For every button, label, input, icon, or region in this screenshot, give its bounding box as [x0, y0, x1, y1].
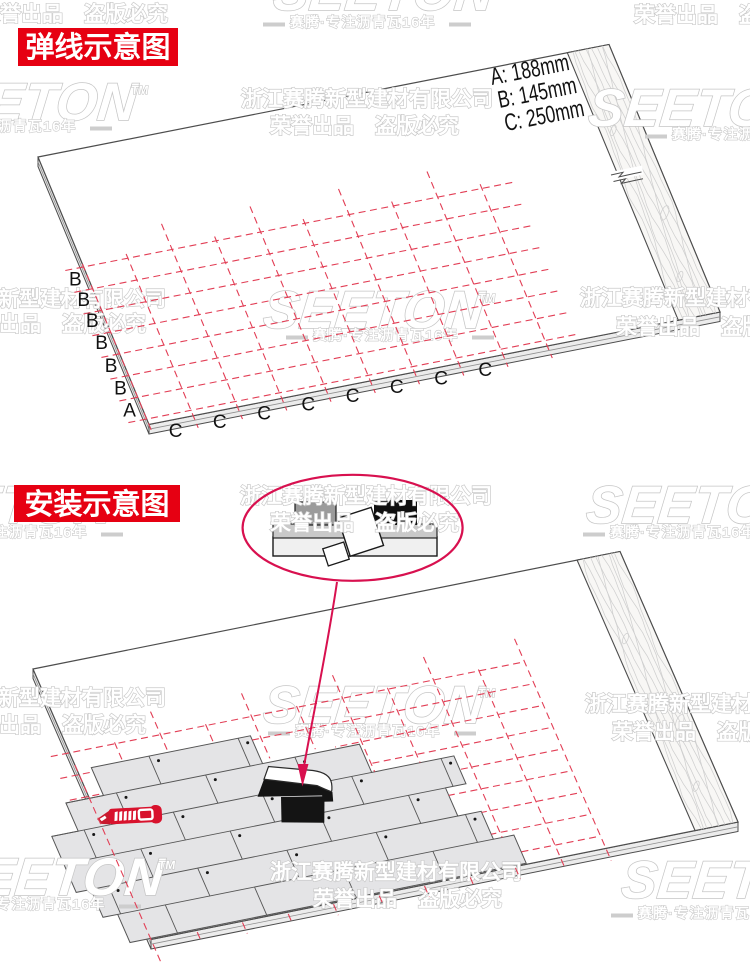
svg-text:C: C [390, 377, 404, 398]
svg-text:赛腾·专注沥青瓦16年: 赛腾·专注沥青瓦16年 [294, 723, 440, 739]
svg-text:浙江赛腾新型建材有限公司: 浙江赛腾新型建材有限公司 [585, 692, 750, 716]
svg-text:荣誉出品 盗版必究: 荣誉出品 盗版必究 [0, 312, 146, 336]
svg-text:荣誉出品 盗版必究: 荣誉出品 盗版必究 [0, 713, 146, 737]
svg-text:B: B [86, 311, 99, 332]
svg-text:B: B [69, 270, 82, 291]
svg-text:A: A [123, 400, 136, 421]
svg-text:荣誉出品 盗版必究: 荣誉出品 盗版必究 [269, 511, 459, 535]
svg-text:TM: TM [130, 83, 149, 97]
svg-text:SEETON: SEETON [619, 851, 750, 910]
svg-text:浙江赛腾新型建材有限公司: 浙江赛腾新型建材有限公司 [241, 87, 493, 111]
svg-text:C: C [301, 395, 315, 416]
svg-text:TM: TM [477, 686, 496, 700]
svg-text:C: C [169, 421, 183, 442]
svg-text:荣誉出品 盗版必究: 荣誉出品 盗版必究 [611, 720, 750, 744]
svg-text:B: B [95, 333, 108, 354]
svg-text:C: C [257, 403, 271, 424]
svg-text:C: C [346, 386, 360, 407]
svg-text:荣誉出品 盗版必究: 荣誉出品 盗版必究 [269, 114, 459, 138]
svg-text:浙江赛腾新型建材有限公司: 浙江赛腾新型建材有限公司 [240, 484, 492, 508]
svg-text:赛腾·专注沥青瓦16年: 赛腾·专注沥青瓦16年 [312, 327, 458, 343]
svg-text:赛腾·专注沥青瓦16年: 赛腾·专注沥青瓦16年 [0, 896, 105, 912]
svg-text:B: B [105, 356, 118, 377]
svg-text:赛腾·专注沥青瓦16年: 赛腾·专注沥青瓦16年 [609, 524, 750, 540]
svg-text:荣誉出品 盗版必究: 荣誉出品 盗版必究 [312, 887, 502, 911]
svg-text:TM: TM [157, 858, 176, 872]
svg-text:C: C [478, 360, 492, 381]
svg-text:弹线示意图: 弹线示意图 [25, 30, 170, 64]
svg-text:赛腾·专注沥青瓦16年: 赛腾·专注沥青瓦16年 [289, 14, 435, 30]
svg-text:浙江赛腾新型建材有限公司: 浙江赛腾新型建材有限公司 [270, 860, 522, 884]
svg-text:荣誉出品 盗版必究: 荣誉出品 盗版必究 [633, 3, 750, 27]
svg-text:赛腾·专注沥青瓦16年: 赛腾·专注沥青瓦16年 [0, 118, 76, 134]
svg-text:B: B [114, 379, 127, 400]
svg-text:浙江赛腾新型建材有限公司: 浙江赛腾新型建材有限公司 [0, 686, 166, 710]
svg-text:荣誉出品 盗版必究: 荣誉出品 盗版必究 [615, 315, 750, 339]
svg-text:赛腾·专注沥青瓦16年: 赛腾·专注沥青瓦16年 [671, 126, 750, 142]
svg-text:C: C [213, 412, 227, 433]
svg-text:浙江赛腾新型建材有限公司: 浙江赛腾新型建材有限公司 [580, 286, 750, 310]
svg-text:B: B [77, 290, 90, 311]
svg-text:赛腾·专注沥青瓦16年: 赛腾·专注沥青瓦16年 [637, 905, 750, 921]
svg-text:C: C [434, 369, 448, 390]
svg-text:赛腾·专注沥青瓦16年: 赛腾·专注沥青瓦16年 [0, 524, 87, 540]
svg-text:TM: TM [477, 291, 496, 305]
svg-text:安装示意图: 安装示意图 [24, 487, 169, 521]
svg-text:荣誉出品 盗版必究: 荣誉出品 盗版必究 [0, 2, 168, 26]
